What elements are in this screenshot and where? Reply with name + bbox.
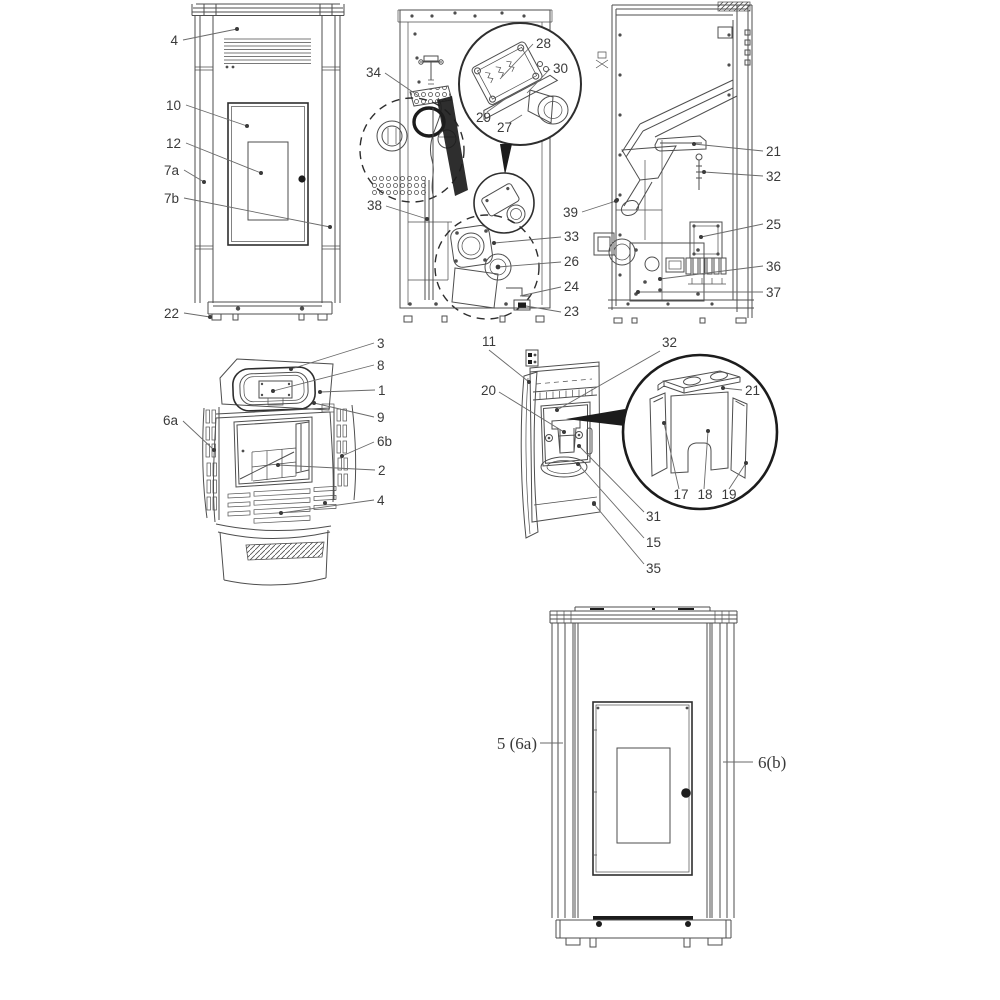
part-32-screw [696, 154, 702, 190]
feed-funnel [594, 146, 676, 265]
callout-31: 31 [646, 509, 661, 524]
part-21-bar [655, 136, 706, 151]
callout-6b: 6b [377, 434, 392, 449]
callout-8: 8 [377, 358, 385, 373]
front-view-upper: 4 10 12 7a 7b 22 [164, 4, 344, 321]
lower-shell [216, 524, 331, 585]
callout-10: 10 [166, 98, 181, 113]
callout-4b: 4 [377, 493, 385, 508]
front-panel [213, 16, 322, 303]
top-grille [718, 2, 750, 11]
base [208, 302, 332, 320]
callout-35: 35 [646, 561, 661, 576]
top-rear-perspective-view: 3 8 1 9 6a 6b 2 4 [163, 336, 392, 585]
callout-28: 28 [536, 36, 551, 51]
callout-26: 26 [564, 254, 579, 269]
rear-vent-grid [372, 176, 426, 197]
callout-3: 3 [377, 336, 385, 351]
callout-12: 12 [166, 136, 181, 151]
side-pillars [195, 16, 340, 304]
callout-7a: 7a [164, 163, 180, 178]
callout-17: 17 [673, 487, 688, 502]
door-handle [298, 175, 305, 182]
callout-19: 19 [721, 487, 736, 502]
fire-door-lower [593, 702, 692, 875]
latch-detail [596, 52, 608, 68]
auger-motor-detail-circle [459, 23, 581, 145]
callout-32b: 32 [662, 335, 677, 350]
callout-11: 11 [482, 334, 496, 349]
callout-25: 25 [766, 217, 781, 232]
firebox-body [530, 362, 600, 522]
door-frame [228, 103, 308, 245]
callout-4: 4 [170, 33, 178, 48]
callout-27: 27 [497, 120, 512, 135]
callout-32: 32 [766, 169, 781, 184]
callout-20: 20 [481, 383, 496, 398]
callout-21: 21 [766, 144, 781, 159]
scraper-handle [419, 56, 443, 84]
top-back-panel [220, 359, 333, 410]
parts-diagram-canvas: 4 10 12 7a 7b 22 [0, 0, 1000, 1000]
zoom-pointer-arrow [566, 409, 625, 426]
side-section-view: 21 32 25 36 37 [594, 2, 781, 323]
door-window-lower [617, 748, 670, 843]
callouts-front-lower: 5 (6a) 6(b) [497, 734, 786, 772]
callout-33: 33 [564, 229, 579, 244]
control-box-25 [690, 222, 722, 258]
callout-15: 15 [646, 535, 661, 550]
callout-38: 38 [367, 198, 382, 213]
lower-grille [246, 542, 324, 560]
callout-5-6a: 5 (6a) [497, 734, 537, 753]
front-view-lower: 5 (6a) 6(b) [497, 607, 786, 947]
detail-pointer-wedge [500, 144, 512, 175]
fire-door [228, 103, 308, 245]
base-side [608, 300, 754, 323]
auger-location-circle [474, 173, 534, 233]
top-plate-lower [550, 607, 737, 623]
rear-section-view: 34 28 30 29 27 38 39 33 26 24 23 [360, 10, 618, 322]
callout-24: 24 [564, 279, 580, 294]
door-window [248, 142, 288, 220]
door-frame-lower [593, 702, 692, 875]
callout-6a: 6a [163, 413, 179, 428]
parts-diagram-page: 4 10 12 7a 7b 22 [0, 0, 1000, 1000]
top-plate [192, 4, 344, 16]
door-handle-lower [681, 788, 691, 798]
right-vent-6b [334, 405, 356, 500]
firebox-panels-detail-circle [623, 355, 777, 509]
callout-22: 22 [164, 306, 179, 321]
callout-30: 30 [553, 61, 568, 76]
callout-39: 39 [563, 205, 578, 220]
callout-34: 34 [366, 65, 382, 80]
vent-grille [224, 39, 311, 64]
callout-7b: 7b [164, 191, 179, 206]
callouts-side-section: 21 32 25 36 37 [636, 142, 781, 300]
body-lower [575, 623, 710, 918]
left-vent-6a [203, 407, 219, 520]
body-top-band [216, 404, 334, 418]
flue-stub [594, 233, 614, 255]
callout-21b: 21 [745, 383, 760, 398]
base-lower [556, 916, 731, 947]
firebox-detail-view: 11 32 20 21 17 18 19 31 15 35 [481, 334, 777, 576]
callout-6-b: 6(b) [758, 753, 786, 772]
callout-36: 36 [766, 259, 781, 274]
fan-housing [452, 268, 498, 308]
callout-2: 2 [378, 463, 386, 478]
callout-18: 18 [697, 487, 712, 502]
callout-9: 9 [377, 410, 385, 425]
callout-29: 29 [476, 110, 491, 125]
callout-1: 1 [378, 383, 386, 398]
front-grille [228, 486, 336, 524]
callouts-top-perspective: 3 8 1 9 6a 6b 2 4 [163, 336, 392, 515]
callout-37: 37 [766, 285, 781, 300]
callout-23: 23 [564, 304, 579, 319]
inner-shelf-grid [240, 448, 296, 481]
